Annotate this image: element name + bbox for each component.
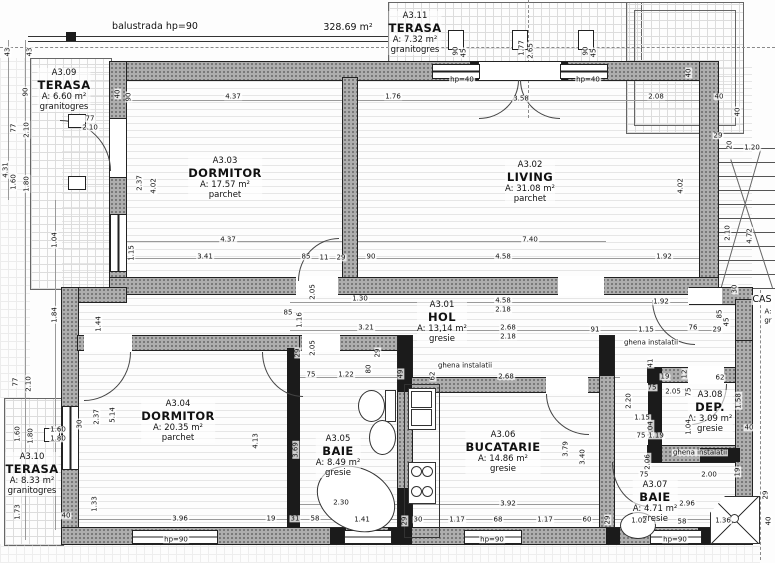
dimension-label: 30 (413, 516, 424, 523)
wall-top (110, 62, 718, 80)
toilet-bowl (358, 390, 385, 422)
room-floor: parchet (505, 194, 555, 204)
exterior-grid-bottom-left (0, 544, 760, 563)
dimension-label: 30 (731, 284, 738, 295)
dimension-label: 2.96 (678, 500, 696, 507)
room-label-terasa9: A3.09 TERASA A: 6.60 m² granitogres (37, 68, 90, 112)
dimension-label: 1.04 (685, 418, 692, 436)
dimension-label: 40 (734, 107, 741, 118)
room-id: A3.07 (633, 480, 678, 490)
dimension-label: 1.22 (337, 371, 355, 378)
room-floor: parchet (141, 433, 215, 443)
dimension-label: 1.04 (51, 231, 58, 249)
dimension-label: 1.44 (95, 315, 102, 333)
dimension-label: 5.14 (109, 406, 116, 424)
dimension-label: 1.60 (49, 426, 67, 433)
dimension-label: 1.84 (51, 306, 58, 324)
dim-line (126, 100, 716, 101)
annotation-label: balustrada hp=90 (111, 22, 199, 32)
dimension-label: A: (763, 308, 772, 315)
dimension-label: 40 (685, 68, 692, 79)
dimension-label: 3.21 (357, 324, 375, 331)
dimension-label: 58 (310, 515, 321, 522)
dimension-label: 75 (306, 371, 317, 378)
room-label-bucatarie: A3.06 BUCATARIE A: 14.86 m² gresie (466, 430, 541, 474)
dimension-label: 2.37 (136, 174, 143, 192)
dimension-label: 77 (10, 123, 17, 134)
room-name: BUCATARIE (466, 440, 541, 454)
annotation-label: hp=90 (662, 536, 688, 543)
room-area: A: 8.49 m² (316, 458, 361, 468)
dimension-label: 29 (294, 348, 301, 359)
dimension-label: 1.76 (384, 93, 402, 100)
dimension-label: 2.05 (309, 339, 316, 357)
dimension-label: 4.72 (746, 227, 753, 245)
dimension-label: 90 (125, 92, 132, 103)
room-id: A3.04 (141, 399, 215, 409)
annotation-label: hp=40 (449, 76, 475, 83)
room-area: A: 8.33 m² (5, 476, 58, 486)
window-dormitor3-terrace (110, 214, 127, 272)
dimension-label: 4.02 (150, 177, 157, 195)
balustrade-post (66, 32, 76, 41)
dimension-label: 1.17 (448, 516, 466, 523)
room-label-living: A3.02 LIVING A: 31.08 m² parchet (505, 160, 555, 204)
dimension-label: 29 (713, 132, 724, 139)
dimension-label: 40 (61, 512, 72, 519)
dimension-label: 29 (336, 254, 347, 261)
dimension-label: 1.77 (518, 39, 525, 57)
balustrade-line (28, 36, 388, 42)
annotation-label: ghena instalatii (437, 362, 493, 369)
dimension-label: 68 (493, 516, 504, 523)
dimension-label: 75 (636, 432, 647, 439)
dimension-label: 58 (677, 518, 688, 525)
dimension-label: 2.06 (644, 453, 651, 471)
dimension-label: 40 (765, 516, 772, 527)
wall-black-jamb (606, 528, 620, 544)
door-opening-terrace-double (478, 62, 562, 80)
dimension-label: 90 (22, 87, 29, 98)
room-area: A: 20.35 m² (141, 423, 215, 433)
dimension-label: 1.92 (652, 298, 670, 305)
room-name: TERASA (388, 21, 441, 35)
room-label-baie5: A3.05 BAIE A: 8.49 m² gresie (316, 434, 361, 478)
annotation-label: hp=90 (479, 536, 505, 543)
dimension-label: 2.10 (25, 375, 32, 393)
dimension-label: 76 (688, 324, 699, 331)
room-area: A: 4.71 m² (633, 504, 678, 514)
room-id: A3.11 (388, 11, 441, 21)
room-id: A3.06 (466, 430, 541, 440)
dimension-label: 62 (429, 371, 436, 382)
room-floor: granitogres (388, 45, 441, 55)
dimension-label: 3.58 (512, 95, 530, 102)
dimension-label: 1.41 (353, 516, 371, 523)
dimension-label: 2.37 (93, 408, 100, 426)
dimension-label: 4.02 (677, 177, 684, 195)
dimension-label: 2.18 (494, 306, 512, 313)
dimension-label: 75 (685, 387, 692, 398)
room-label-dormitor4: A3.04 DORMITOR A: 20.35 m² parchet (141, 399, 215, 443)
opening-living-hol (558, 276, 604, 296)
room-area: A: 17.57 m² (188, 180, 262, 190)
annotation-label: hp=90 (163, 536, 189, 543)
dimension-label: 2.65 (527, 42, 534, 60)
dimension-label: 3.40 (579, 448, 586, 466)
dimension-label: 43 (4, 47, 11, 58)
dimension-label: 45 (460, 48, 467, 59)
dimension-label: 75 (639, 471, 650, 478)
dimension-label: 1.17 (536, 516, 554, 523)
annotation-label: ghena instalatii (672, 449, 728, 456)
dimension-label: 2.08 (647, 93, 665, 100)
dimension-label: 85 (283, 309, 294, 316)
room-name: DORMITOR (141, 409, 215, 423)
room-area: A: 14.86 m² (466, 454, 541, 464)
room-id: A3.05 (316, 434, 361, 444)
dimension-label: 19 (734, 467, 741, 478)
dimension-label: 4.58 (494, 253, 512, 260)
room-area: A: 6.60 m² (37, 92, 90, 102)
room-name: DEP. (688, 400, 733, 414)
room-area: A: 7.32 m² (388, 35, 441, 45)
dimension-label: 3.69 (292, 441, 299, 459)
stove-burner (411, 466, 422, 477)
dimension-label: 29 (604, 515, 611, 526)
annotation-label: gr (763, 317, 772, 324)
room-name: TERASA (37, 78, 90, 92)
room-name: BAIE (633, 490, 678, 504)
room-label-dep: A3.08 DEP. A: 3.09 m² gresie (688, 390, 733, 434)
door-opening-terrace9 (110, 118, 126, 178)
toilet-tank (385, 390, 396, 422)
dimension-label: 2.68 (497, 373, 515, 380)
dimension-label: 7.40 (521, 236, 539, 243)
room-id: A3.09 (37, 68, 90, 78)
dimension-label: 77 (85, 115, 96, 122)
room-name: HOL (417, 310, 467, 324)
dimension-label: 2.30 (332, 499, 350, 506)
room-label-dormitor3: A3.03 DORMITOR A: 17.57 m² parchet (188, 156, 262, 200)
dimension-label: 19 (660, 373, 671, 380)
wall-mid-horizontal (110, 278, 718, 294)
room-name: LIVING (505, 170, 555, 184)
room-floor: parchet (188, 190, 262, 200)
wall-right-jog (736, 300, 752, 340)
room-id: A3.01 (417, 300, 467, 310)
dimension-label: 12 (681, 369, 688, 380)
dimension-label: 40 (114, 89, 121, 100)
dimension-label: 49 (397, 369, 404, 380)
dimension-label: 3.96 (171, 515, 189, 522)
dimension-label: 85 (301, 253, 312, 260)
dimension-label: 4.37 (224, 93, 242, 100)
room-floor: gresie (417, 334, 467, 344)
door-opening-bucatarie (546, 376, 588, 394)
annotation-label: hp=40 (575, 76, 601, 83)
dimension-label: 1.20 (743, 144, 761, 151)
dimension-label: 1.36 (714, 517, 732, 524)
dimension-label: 3.92 (499, 500, 517, 507)
room-id: A3.03 (188, 156, 262, 166)
dimension-label: 2.18 (499, 333, 517, 340)
washbasin-baie5 (369, 420, 396, 455)
dimension-label: 1.92 (655, 253, 673, 260)
dimension-label: 1.60 (10, 173, 17, 191)
annotation-label: ghena instalatii (623, 339, 679, 346)
room-floor: gresie (466, 464, 541, 474)
dimension-label: 77 (12, 377, 19, 388)
dimension-label: 1.19 (647, 432, 665, 439)
room-name: TERASA (5, 462, 58, 476)
room-floor: granitogres (5, 486, 58, 496)
room-floor: gresie (688, 424, 733, 434)
dimension-label: 75 (647, 384, 658, 391)
dimension-label: 1.80 (49, 435, 67, 442)
dimension-label: 2.68 (499, 324, 517, 331)
dimension-label: 1.02 (630, 517, 648, 524)
dimension-label: 1.30 (351, 295, 369, 302)
stove-burner (411, 486, 422, 497)
dimension-label: 1.15 (128, 244, 135, 262)
room-floor: gresie (316, 468, 361, 478)
dimension-label: 20 (726, 140, 733, 151)
dimension-label: 3.79 (562, 440, 569, 458)
dimension-label: 4.13 (252, 432, 259, 450)
dimension-label: 1.58 (735, 392, 742, 410)
wall-black-corridor (600, 336, 614, 376)
room-floor: granitogres (37, 102, 90, 112)
dimension-label: 1.80 (23, 175, 30, 193)
dimension-label: 3.41 (196, 253, 214, 260)
dimension-label: 31 (290, 515, 301, 522)
dimension-label: 2.00 (700, 471, 718, 478)
dimension-label: 1.15 (637, 326, 655, 333)
kitchen-sink-bowl (411, 391, 432, 408)
dimension-label: 2.05 (664, 388, 682, 395)
dimension-label: 91 (590, 326, 601, 333)
room-name: BAIE (316, 444, 361, 458)
dimension-label: 2.10 (81, 124, 99, 131)
dimension-label: 328.69 m² (322, 23, 373, 33)
room-area: A: 3.09 m² (688, 414, 733, 424)
annotation-label: CAS (751, 295, 772, 305)
room-label-terasa11: A3.11 TERASA A: 7.32 m² granitogres (388, 11, 441, 55)
dimension-label: 2.10 (23, 121, 30, 139)
dimension-label: 29 (374, 348, 381, 359)
dimension-label: 11 (319, 254, 330, 261)
room-name: DORMITOR (188, 166, 262, 180)
dimension-label: 1.80 (27, 427, 34, 445)
room-area: A: 13,14 m² (417, 324, 467, 334)
dimension-label: 1.33 (91, 495, 98, 513)
dimension-label: 2.05 (309, 283, 316, 301)
room-label-hol: A3.01 HOL A: 13,14 m² gresie (417, 300, 467, 344)
dimension-label: 29 (401, 516, 408, 527)
stove-burner (422, 486, 433, 497)
dimension-label: 45 (590, 48, 597, 59)
dimension-label: 40 (714, 93, 725, 100)
dimension-label: 40 (744, 424, 755, 431)
dimension-label: 45 (723, 317, 730, 328)
terrace-post (68, 176, 86, 190)
dimension-label: 62 (715, 374, 726, 381)
dimension-label: 2.10 (724, 224, 731, 242)
room-id: A3.08 (688, 390, 733, 400)
dimension-label: 29 (762, 490, 769, 501)
dimension-label: 1.16 (296, 311, 303, 329)
stove-burner (422, 466, 433, 477)
dimension-label: 90 (366, 253, 377, 260)
room-label-terasa10: A3.10 TERASA A: 8.33 m² granitogres (5, 452, 58, 496)
door-opening-dormitor4 (84, 334, 132, 352)
dimension-label: 1.60 (14, 425, 21, 443)
room-id: A3.10 (5, 452, 58, 462)
centerline-right (760, 290, 761, 560)
room-area: A: 31.08 m² (505, 184, 555, 194)
dimension-label: 19 (266, 515, 277, 522)
dimension-label: 43 (26, 47, 33, 58)
dimension-label: 80 (365, 364, 372, 375)
dimension-label: 60 (582, 516, 593, 523)
dimension-label: 1.73 (14, 503, 21, 521)
dimension-label: 29 (712, 326, 723, 333)
floor-plan: A3.01 HOL A: 13,14 m² gresie A3.02 LIVIN… (0, 0, 775, 563)
kitchen-sink-bowl (411, 409, 432, 426)
dimension-label: 41 (647, 358, 654, 369)
dimension-label: 2.20 (625, 392, 632, 410)
dimension-label: 30 (76, 419, 83, 430)
dimension-label: 4.37 (219, 236, 237, 243)
room-id: A3.02 (505, 160, 555, 170)
dimension-label: 4.58 (494, 297, 512, 304)
